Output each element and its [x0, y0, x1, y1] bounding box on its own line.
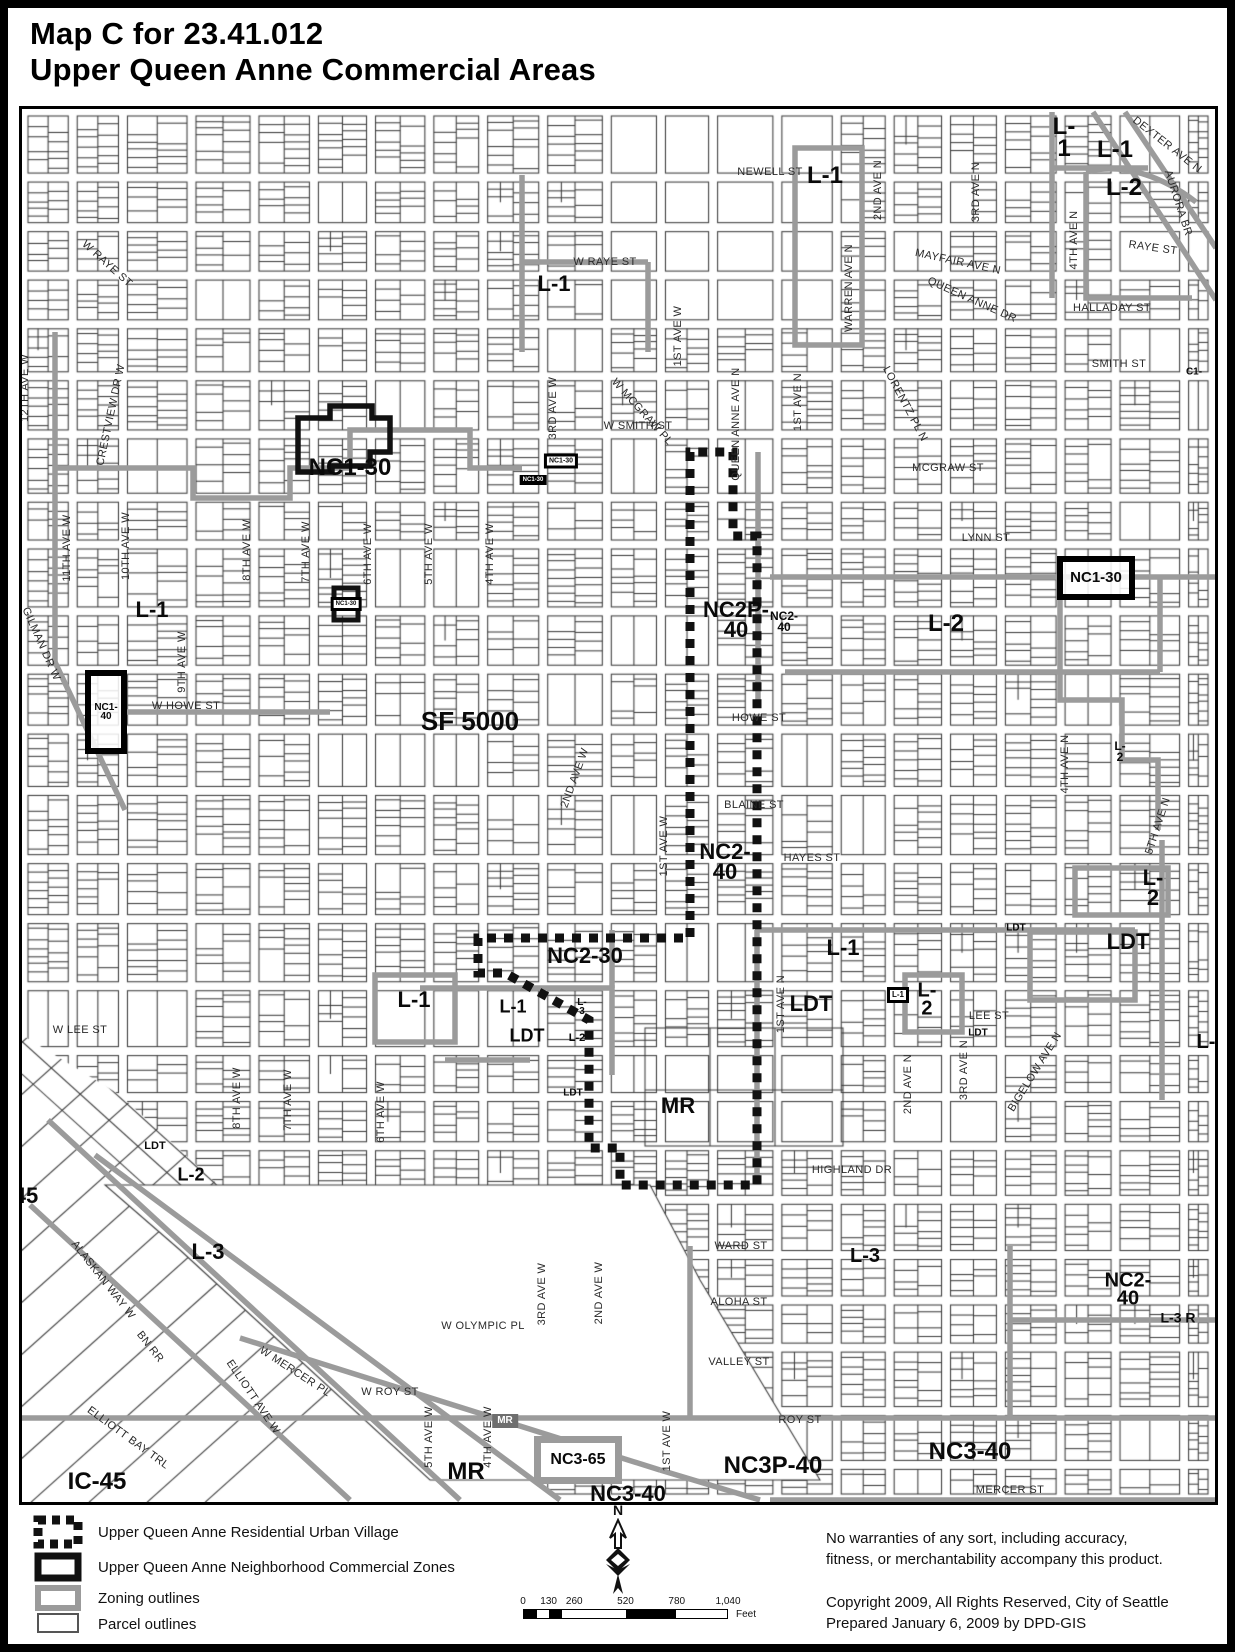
scale-bar-segment — [524, 1610, 537, 1618]
disclaimer-line2: fitness, or merchantability accompany th… — [826, 1549, 1216, 1570]
map-title-line2: Upper Queen Anne Commercial Areas — [30, 52, 596, 88]
scale-tick-label: 1,040 — [715, 1596, 740, 1607]
parcel-outlines-swatch-icon — [28, 1610, 88, 1638]
scale-bar-segment — [562, 1610, 575, 1618]
disclaimer-line1: No warranties of any sort, including acc… — [826, 1528, 1216, 1549]
legend-item-label: Parcel outlines — [98, 1616, 196, 1633]
scale-bar-segment — [575, 1610, 626, 1618]
scale-bar-segment — [676, 1610, 727, 1618]
scale-bar-ticks: 01302605207801,040 — [523, 1596, 728, 1609]
notes-block: No warranties of any sort, including acc… — [826, 1528, 1216, 1634]
legend-item-label: Upper Queen Anne Neighborhood Commercial… — [98, 1559, 455, 1576]
commercial-zones-swatch-icon — [28, 1550, 88, 1584]
north-arrow-icon — [598, 1518, 638, 1596]
scale-tick-label: 520 — [617, 1596, 634, 1607]
scale-bar-bar — [523, 1609, 728, 1619]
urban-village-swatch-icon — [28, 1512, 88, 1552]
scale-bar: 01302605207801,040 Feet — [523, 1596, 728, 1622]
scale-bar-segment — [537, 1610, 550, 1618]
legend-item: Upper Queen Anne Neighborhood Commercial… — [28, 1550, 455, 1584]
legend-item: Upper Queen Anne Residential Urban Villa… — [28, 1512, 399, 1552]
scale-bar-segment — [549, 1610, 562, 1618]
zoning-overlay — [22, 109, 1215, 1502]
legend-item-label: Upper Queen Anne Residential Urban Villa… — [98, 1524, 399, 1541]
zoning-map-page: { "title": { "line1": "Map C for 23.41.0… — [0, 0, 1235, 1652]
scale-tick-label: 780 — [668, 1596, 685, 1607]
copyright-line2: Prepared January 6, 2009 by DPD-GIS — [826, 1613, 1216, 1634]
scale-tick-label: 130 — [540, 1596, 557, 1607]
scale-bar-segment — [626, 1610, 677, 1618]
map-title-line1: Map C for 23.41.012 — [30, 16, 596, 52]
scale-bar-unit: Feet — [736, 1609, 756, 1620]
legend-item-label: Zoning outlines — [98, 1590, 200, 1607]
scale-tick-label: 0 — [520, 1596, 526, 1607]
scale-tick-label: 260 — [566, 1596, 583, 1607]
legend-item: Parcel outlines — [28, 1610, 196, 1638]
copyright-line1: Copyright 2009, All Rights Reserved, Cit… — [826, 1592, 1216, 1613]
map-canvas-area: L-1L- 1L-1L-2L-1NC1-30NC1-30NC1-30NC1-30… — [19, 106, 1218, 1505]
north-label: N — [613, 1502, 623, 1518]
title-block: Map C for 23.41.012 Upper Queen Anne Com… — [30, 16, 596, 88]
